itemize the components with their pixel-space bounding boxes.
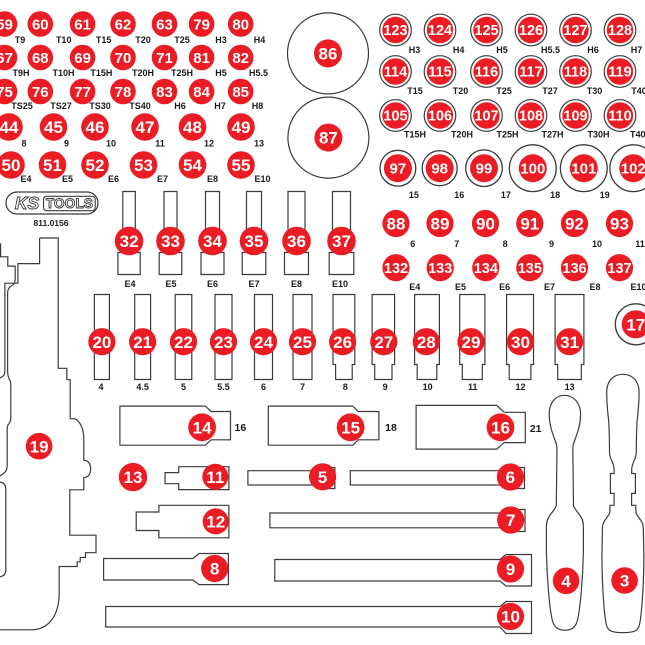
svg-text:44: 44 [0, 118, 19, 137]
svg-text:T15: T15 [96, 35, 112, 45]
svg-text:101: 101 [571, 161, 596, 178]
svg-text:H5.5: H5.5 [249, 68, 268, 78]
svg-text:85: 85 [232, 84, 249, 101]
svg-text:7: 7 [506, 511, 515, 530]
svg-text:82: 82 [232, 50, 249, 67]
svg-text:106: 106 [428, 109, 452, 125]
svg-text:76: 76 [32, 84, 49, 101]
svg-text:137: 137 [607, 261, 631, 277]
svg-text:54: 54 [183, 156, 202, 175]
svg-text:TS25: TS25 [11, 101, 33, 111]
svg-text:29: 29 [462, 333, 481, 352]
svg-text:T15: T15 [407, 86, 423, 96]
svg-text:KS: KS [15, 193, 40, 213]
svg-text:91: 91 [520, 215, 539, 234]
svg-text:108: 108 [519, 109, 543, 125]
svg-text:27: 27 [374, 333, 393, 352]
svg-text:T25: T25 [496, 86, 512, 96]
svg-text:75: 75 [0, 84, 13, 101]
svg-text:TS27: TS27 [50, 101, 72, 111]
svg-text:21: 21 [530, 423, 542, 435]
svg-text:107: 107 [474, 109, 498, 125]
svg-text:69: 69 [74, 50, 91, 67]
svg-text:30: 30 [511, 333, 530, 352]
svg-text:134: 134 [474, 261, 498, 277]
svg-text:12: 12 [515, 382, 525, 392]
svg-text:136: 136 [562, 261, 586, 277]
svg-text:50: 50 [2, 156, 21, 175]
svg-text:93: 93 [610, 215, 629, 234]
svg-text:T25H: T25H [171, 68, 193, 78]
svg-text:H4: H4 [254, 35, 266, 45]
svg-text:62: 62 [115, 16, 132, 33]
svg-text:17: 17 [501, 190, 511, 200]
svg-text:102: 102 [621, 161, 645, 178]
svg-text:4.5: 4.5 [136, 382, 149, 392]
svg-text:88: 88 [387, 215, 406, 234]
svg-text:132: 132 [384, 261, 408, 277]
svg-text:28: 28 [417, 333, 436, 352]
svg-text:71: 71 [156, 50, 173, 67]
svg-text:18: 18 [385, 422, 397, 434]
svg-text:E5: E5 [455, 282, 466, 292]
svg-text:811.0156: 811.0156 [34, 218, 69, 228]
svg-text:T20H: T20H [132, 68, 154, 78]
svg-text:51: 51 [43, 156, 62, 175]
svg-text:116: 116 [475, 65, 498, 81]
svg-text:12: 12 [204, 139, 214, 149]
svg-text:E7: E7 [544, 282, 555, 292]
svg-text:T9: T9 [15, 35, 26, 45]
svg-text:13: 13 [124, 468, 143, 487]
svg-text:T30: T30 [587, 86, 603, 96]
svg-text:90: 90 [476, 215, 495, 234]
svg-text:E7: E7 [248, 279, 259, 289]
svg-text:H6: H6 [174, 101, 186, 111]
svg-text:T10: T10 [56, 35, 72, 45]
svg-text:17: 17 [626, 315, 645, 334]
svg-text:126: 126 [519, 23, 543, 39]
svg-text:128: 128 [608, 23, 632, 39]
svg-text:63: 63 [156, 16, 173, 33]
svg-text:92: 92 [565, 215, 584, 234]
svg-text:110: 110 [608, 109, 631, 125]
svg-text:5.5: 5.5 [217, 382, 230, 392]
svg-text:117: 117 [519, 65, 542, 81]
svg-text:36: 36 [287, 232, 306, 251]
svg-text:16: 16 [491, 418, 510, 437]
svg-text:7: 7 [300, 382, 305, 392]
svg-text:8: 8 [21, 139, 26, 149]
svg-text:E8: E8 [589, 282, 600, 292]
svg-text:E8: E8 [207, 174, 218, 184]
svg-text:83: 83 [156, 84, 173, 101]
svg-text:T40: T40 [631, 86, 645, 96]
svg-text:H5: H5 [496, 45, 508, 55]
svg-text:9: 9 [549, 239, 554, 249]
svg-text:135: 135 [518, 261, 542, 277]
svg-text:T10H: T10H [52, 68, 74, 78]
svg-text:E5: E5 [165, 279, 176, 289]
svg-text:E4: E4 [124, 279, 135, 289]
svg-text:97: 97 [390, 161, 407, 178]
svg-text:125: 125 [474, 23, 498, 39]
svg-text:E6: E6 [499, 282, 510, 292]
svg-text:9: 9 [64, 139, 69, 149]
svg-text:60: 60 [32, 16, 49, 33]
svg-text:26: 26 [333, 333, 352, 352]
svg-text:49: 49 [232, 118, 251, 137]
svg-text:H6: H6 [587, 45, 599, 55]
svg-text:11: 11 [468, 382, 478, 392]
svg-text:12: 12 [206, 513, 225, 532]
svg-text:68: 68 [32, 50, 49, 67]
svg-text:E6: E6 [108, 174, 119, 184]
svg-text:TS40: TS40 [129, 101, 151, 111]
svg-text:23: 23 [214, 333, 233, 352]
svg-text:E4: E4 [409, 282, 420, 292]
svg-text:11: 11 [206, 468, 224, 487]
svg-text:H3: H3 [409, 45, 421, 55]
svg-text:89: 89 [431, 215, 450, 234]
svg-text:99: 99 [476, 161, 493, 178]
svg-text:114: 114 [384, 65, 407, 81]
svg-text:37: 37 [332, 232, 351, 251]
svg-text:T15H: T15H [90, 68, 112, 78]
svg-text:8: 8 [210, 560, 219, 579]
svg-text:T30H: T30H [587, 130, 609, 140]
svg-text:100: 100 [520, 161, 545, 178]
svg-text:35: 35 [245, 232, 264, 251]
svg-text:47: 47 [136, 118, 155, 137]
svg-text:24: 24 [254, 333, 273, 352]
svg-text:59: 59 [0, 16, 13, 33]
svg-text:11: 11 [155, 139, 165, 149]
svg-text:4: 4 [98, 382, 103, 392]
svg-text:T20: T20 [135, 35, 151, 45]
svg-text:5: 5 [318, 468, 327, 487]
svg-text:E7: E7 [157, 174, 168, 184]
svg-text:T20: T20 [453, 86, 469, 96]
svg-text:E4: E4 [20, 174, 31, 184]
svg-text:52: 52 [86, 156, 105, 175]
svg-text:H8: H8 [252, 101, 264, 111]
svg-text:123: 123 [383, 23, 407, 39]
svg-text:H5: H5 [215, 68, 227, 78]
svg-text:3: 3 [620, 572, 629, 591]
svg-text:31: 31 [560, 333, 579, 352]
svg-text:6: 6 [506, 468, 515, 487]
svg-text:6: 6 [410, 239, 415, 249]
svg-text:E10: E10 [332, 279, 348, 289]
svg-text:22: 22 [174, 333, 193, 352]
svg-text:20: 20 [92, 333, 111, 352]
svg-text:10: 10 [501, 608, 520, 627]
svg-text:E6: E6 [207, 279, 218, 289]
svg-text:18: 18 [550, 190, 560, 200]
svg-text:53: 53 [134, 156, 153, 175]
svg-text:80: 80 [232, 16, 249, 33]
svg-text:H7: H7 [214, 101, 226, 111]
svg-text:9: 9 [383, 382, 388, 392]
svg-text:7: 7 [454, 239, 459, 249]
svg-text:TOOLS: TOOLS [46, 196, 93, 211]
svg-text:T27H: T27H [541, 130, 563, 140]
svg-text:84: 84 [193, 84, 210, 101]
svg-text:TS30: TS30 [89, 101, 111, 111]
svg-text:T15H: T15H [404, 130, 426, 140]
svg-text:15: 15 [409, 190, 419, 200]
svg-text:T40H: T40H [630, 130, 645, 140]
svg-text:86: 86 [319, 45, 338, 64]
svg-text:98: 98 [431, 161, 448, 178]
svg-text:16: 16 [454, 190, 464, 200]
svg-text:8: 8 [343, 382, 348, 392]
svg-text:105: 105 [383, 109, 407, 125]
svg-text:4: 4 [561, 572, 571, 591]
svg-text:E5: E5 [62, 174, 73, 184]
svg-text:8: 8 [503, 239, 508, 249]
svg-text:E10: E10 [630, 282, 645, 292]
svg-text:E8: E8 [291, 279, 302, 289]
svg-text:5: 5 [181, 382, 186, 392]
svg-text:10: 10 [106, 139, 116, 149]
svg-text:H7: H7 [631, 45, 643, 55]
svg-text:45: 45 [44, 118, 63, 137]
svg-text:T25H: T25H [496, 130, 518, 140]
svg-text:61: 61 [74, 16, 91, 33]
svg-text:T25: T25 [174, 35, 190, 45]
svg-text:10: 10 [592, 239, 602, 249]
svg-text:87: 87 [319, 129, 338, 148]
svg-text:133: 133 [428, 261, 452, 277]
svg-text:6: 6 [261, 382, 266, 392]
svg-text:48: 48 [183, 118, 202, 137]
svg-text:13: 13 [254, 139, 264, 149]
svg-text:19: 19 [30, 437, 49, 456]
svg-text:77: 77 [74, 84, 91, 101]
svg-text:67: 67 [0, 50, 13, 67]
svg-text:19: 19 [600, 190, 610, 200]
svg-text:55: 55 [232, 156, 251, 175]
svg-text:E10: E10 [254, 174, 270, 184]
svg-text:H5.5: H5.5 [541, 45, 560, 55]
svg-text:46: 46 [86, 118, 105, 137]
svg-text:79: 79 [193, 16, 210, 33]
svg-text:T9H: T9H [12, 68, 29, 78]
svg-text:33: 33 [161, 232, 180, 251]
svg-text:25: 25 [293, 333, 312, 352]
svg-text:127: 127 [563, 23, 587, 39]
svg-text:21: 21 [133, 333, 152, 352]
svg-text:109: 109 [563, 109, 587, 125]
svg-text:T20H: T20H [451, 130, 473, 140]
svg-text:124: 124 [428, 23, 452, 39]
svg-text:70: 70 [115, 50, 132, 67]
svg-text:81: 81 [193, 50, 210, 67]
svg-text:119: 119 [608, 65, 631, 81]
svg-text:34: 34 [203, 232, 222, 251]
svg-text:16: 16 [235, 422, 247, 434]
svg-text:H3: H3 [215, 35, 227, 45]
svg-text:10: 10 [423, 382, 433, 392]
svg-text:14: 14 [193, 418, 212, 437]
svg-text:15: 15 [341, 418, 360, 437]
svg-text:32: 32 [120, 232, 139, 251]
svg-text:9: 9 [506, 560, 515, 579]
svg-text:11: 11 [635, 239, 645, 249]
svg-text:H4: H4 [453, 45, 465, 55]
svg-text:78: 78 [115, 84, 132, 101]
svg-text:115: 115 [428, 65, 451, 81]
svg-text:118: 118 [564, 65, 587, 81]
svg-text:T27: T27 [542, 86, 558, 96]
svg-text:13: 13 [565, 382, 575, 392]
